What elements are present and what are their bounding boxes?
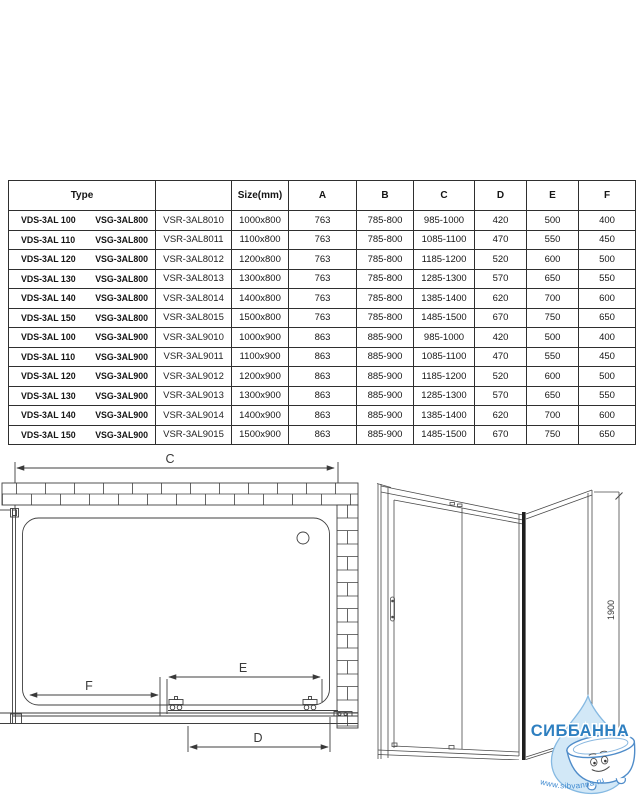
- type-cell: VDS-3AL 140 VSG-3AL900: [9, 406, 156, 426]
- dim-d-cell: 470: [475, 230, 527, 250]
- dim-e-cell: 550: [527, 347, 579, 367]
- dim-c-cell: 1385-1400: [414, 406, 475, 426]
- dim-a-cell: 763: [289, 269, 357, 289]
- model-vds: VDS-3AL 150: [21, 313, 76, 323]
- dim-d-cell: 520: [475, 367, 527, 387]
- col-header-d: D: [475, 181, 527, 211]
- dim-b-cell: 785-800: [357, 289, 414, 309]
- dim-d-cell: 670: [475, 308, 527, 328]
- type-cell: VDS-3AL 120 VSG-3AL800: [9, 250, 156, 270]
- type-cell: VDS-3AL 110 VSG-3AL900: [9, 347, 156, 367]
- dim-e-cell: 550: [527, 230, 579, 250]
- dim-b-cell: 885-900: [357, 367, 414, 387]
- size-cell: 1200x900: [232, 367, 289, 387]
- dim-d-cell: 420: [475, 211, 527, 231]
- model-vsg: VSG-3AL800: [95, 254, 148, 264]
- dim-d-cell: 520: [475, 250, 527, 270]
- dim-e-cell: 700: [527, 406, 579, 426]
- size-cell: 1000x800: [232, 211, 289, 231]
- dim-f-cell: 650: [579, 425, 636, 445]
- code-cell: VSR-3AL8010: [156, 211, 232, 231]
- dim-d-cell: 620: [475, 289, 527, 309]
- dim-e-cell: 500: [527, 328, 579, 348]
- dimension-f: [30, 677, 160, 716]
- dim-e-cell: 750: [527, 308, 579, 328]
- col-header-c: C: [414, 181, 475, 211]
- dim-a-cell: 763: [289, 250, 357, 270]
- model-vds: VDS-3AL 130: [21, 391, 76, 401]
- code-cell: VSR-3AL9012: [156, 367, 232, 387]
- table-row: VDS-3AL 100 VSG-3AL800 VSR-3AL8010 1000x…: [9, 211, 636, 231]
- dim-c-label: C: [165, 452, 174, 466]
- type-cell: VDS-3AL 140 VSG-3AL800: [9, 289, 156, 309]
- model-vsg: VSG-3AL800: [95, 293, 148, 303]
- shower-enclosure-spec-sheet: Type Size(mm) A B C D E F VDS-3AL 100 VS…: [0, 0, 638, 800]
- height-label: 1900: [606, 600, 616, 620]
- table-row: VDS-3AL 140 VSG-3AL900 VSR-3AL9014 1400x…: [9, 406, 636, 426]
- col-header-e: E: [527, 181, 579, 211]
- dim-f-cell: 600: [579, 289, 636, 309]
- col-header-a: A: [289, 181, 357, 211]
- model-vds: VDS-3AL 100: [21, 215, 76, 225]
- drain-icon: [297, 532, 309, 544]
- wall-right: [337, 505, 358, 728]
- model-vsg: VSG-3AL800: [95, 313, 148, 323]
- table-row: VDS-3AL 120 VSG-3AL800 VSR-3AL8012 1200x…: [9, 250, 636, 270]
- model-vsg: VSG-3AL900: [95, 332, 148, 342]
- table-row: VDS-3AL 150 VSG-3AL800 VSR-3AL8015 1500x…: [9, 308, 636, 328]
- dim-f-cell: 600: [579, 406, 636, 426]
- dim-a-cell: 763: [289, 308, 357, 328]
- dim-a-cell: 863: [289, 328, 357, 348]
- model-vds: VDS-3AL 140: [21, 410, 76, 420]
- code-cell: VSR-3AL9013: [156, 386, 232, 406]
- col-header-size: Size(mm): [232, 181, 289, 211]
- dim-c-cell: 1085-1100: [414, 230, 475, 250]
- type-cell: VDS-3AL 120 VSG-3AL900: [9, 367, 156, 387]
- code-cell: VSR-3AL8012: [156, 250, 232, 270]
- model-vds: VDS-3AL 130: [21, 274, 76, 284]
- dim-b-cell: 785-800: [357, 269, 414, 289]
- spec-table: Type Size(mm) A B C D E F VDS-3AL 100 VS…: [8, 180, 636, 445]
- dim-d-cell: 670: [475, 425, 527, 445]
- dim-f-cell: 400: [579, 211, 636, 231]
- dim-f-cell: 550: [579, 386, 636, 406]
- table-row: VDS-3AL 140 VSG-3AL800 VSR-3AL8014 1400x…: [9, 289, 636, 309]
- model-vds: VDS-3AL 140: [21, 293, 76, 303]
- col-header-f: F: [579, 181, 636, 211]
- model-vsg: VSG-3AL900: [95, 430, 148, 440]
- side-panel-profile: [0, 508, 19, 723]
- roller-left: [169, 697, 183, 710]
- dim-e-cell: 500: [527, 211, 579, 231]
- table-row: VDS-3AL 100 VSG-3AL900 VSR-3AL9010 1000x…: [9, 328, 636, 348]
- dim-b-cell: 785-800: [357, 250, 414, 270]
- size-cell: 1100x800: [232, 230, 289, 250]
- table-header-row: Type Size(mm) A B C D E F: [9, 181, 636, 211]
- model-vsg: VSG-3AL800: [95, 215, 148, 225]
- model-vds: VDS-3AL 100: [21, 332, 76, 342]
- code-cell: VSR-3AL9015: [156, 425, 232, 445]
- dim-c-cell: 1185-1200: [414, 250, 475, 270]
- dim-e-label: E: [239, 661, 247, 675]
- dim-f-label: F: [85, 679, 93, 693]
- model-vds: VDS-3AL 120: [21, 371, 76, 381]
- dim-e-cell: 750: [527, 425, 579, 445]
- bottom-rail: [0, 711, 358, 724]
- dim-f-cell: 500: [579, 367, 636, 387]
- dim-c-cell: 1285-1300: [414, 269, 475, 289]
- dim-b-cell: 785-800: [357, 308, 414, 328]
- code-cell: VSR-3AL8013: [156, 269, 232, 289]
- size-cell: 1300x900: [232, 386, 289, 406]
- table-row: VDS-3AL 130 VSG-3AL800 VSR-3AL8013 1300x…: [9, 269, 636, 289]
- code-cell: VSR-3AL9014: [156, 406, 232, 426]
- model-vds: VDS-3AL 120: [21, 254, 76, 264]
- table-row: VDS-3AL 110 VSG-3AL800 VSR-3AL8011 1100x…: [9, 230, 636, 250]
- model-vsg: VSG-3AL900: [95, 352, 148, 362]
- table-row: VDS-3AL 110 VSG-3AL900 VSR-3AL9011 1100x…: [9, 347, 636, 367]
- watermark-brand: СИББАННА: [531, 722, 630, 740]
- dim-f-cell: 400: [579, 328, 636, 348]
- model-vsg: VSG-3AL900: [95, 391, 148, 401]
- dim-c-cell: 985-1000: [414, 211, 475, 231]
- table-row: VDS-3AL 130 VSG-3AL900 VSR-3AL9013 1300x…: [9, 386, 636, 406]
- roller-right: [303, 697, 317, 710]
- dim-d-cell: 570: [475, 269, 527, 289]
- type-cell: VDS-3AL 130 VSG-3AL900: [9, 386, 156, 406]
- dim-a-cell: 763: [289, 211, 357, 231]
- type-cell: VDS-3AL 100 VSG-3AL900: [9, 328, 156, 348]
- dim-a-cell: 863: [289, 386, 357, 406]
- model-vds: VDS-3AL 150: [21, 430, 76, 440]
- dim-f-cell: 550: [579, 269, 636, 289]
- dim-c-cell: 1285-1300: [414, 386, 475, 406]
- dim-b-cell: 785-800: [357, 230, 414, 250]
- dim-d-cell: 620: [475, 406, 527, 426]
- dim-d-cell: 570: [475, 386, 527, 406]
- dim-a-cell: 863: [289, 406, 357, 426]
- type-cell: VDS-3AL 100 VSG-3AL800: [9, 211, 156, 231]
- bottom-rail-front: [378, 743, 519, 760]
- dim-e-cell: 600: [527, 367, 579, 387]
- dim-a-cell: 863: [289, 347, 357, 367]
- dim-e-cell: 650: [527, 269, 579, 289]
- type-cell: VDS-3AL 150 VSG-3AL800: [9, 308, 156, 328]
- dim-f-cell: 450: [579, 230, 636, 250]
- wall-top: [2, 483, 358, 505]
- size-cell: 1500x800: [232, 308, 289, 328]
- dim-b-cell: 885-900: [357, 386, 414, 406]
- dim-a-cell: 763: [289, 289, 357, 309]
- dim-c-cell: 1385-1400: [414, 289, 475, 309]
- col-header-type: Type: [9, 181, 156, 211]
- table-row: VDS-3AL 120 VSG-3AL900 VSR-3AL9012 1200x…: [9, 367, 636, 387]
- dim-c-cell: 1485-1500: [414, 308, 475, 328]
- dim-f-cell: 650: [579, 308, 636, 328]
- dimension-e: [167, 677, 322, 714]
- type-cell: VDS-3AL 150 VSG-3AL900: [9, 425, 156, 445]
- type-cell: VDS-3AL 130 VSG-3AL800: [9, 269, 156, 289]
- watermark: СИББАННА www.sibvanna.ru: [520, 686, 638, 800]
- code-cell: VSR-3AL9011: [156, 347, 232, 367]
- dim-e-cell: 600: [527, 250, 579, 270]
- dim-a-cell: 863: [289, 367, 357, 387]
- model-vds: VDS-3AL 110: [21, 235, 75, 245]
- top-view-drawing: C F E D: [0, 448, 370, 760]
- dim-d-cell: 470: [475, 347, 527, 367]
- dim-a-cell: 863: [289, 425, 357, 445]
- dim-f-cell: 500: [579, 250, 636, 270]
- dim-a-cell: 763: [289, 230, 357, 250]
- model-vsg: VSG-3AL800: [95, 235, 148, 245]
- dim-c-cell: 1085-1100: [414, 347, 475, 367]
- model-vsg: VSG-3AL900: [95, 410, 148, 420]
- dim-b-cell: 885-900: [357, 425, 414, 445]
- dim-c-cell: 1485-1500: [414, 425, 475, 445]
- size-cell: 1400x800: [232, 289, 289, 309]
- model-vds: VDS-3AL 110: [21, 352, 75, 362]
- dim-e-cell: 650: [527, 386, 579, 406]
- size-cell: 1000x900: [232, 328, 289, 348]
- size-cell: 1500x900: [232, 425, 289, 445]
- code-cell: VSR-3AL8014: [156, 289, 232, 309]
- dim-b-cell: 885-900: [357, 347, 414, 367]
- dim-f-cell: 450: [579, 347, 636, 367]
- type-cell: VDS-3AL 110 VSG-3AL800: [9, 230, 156, 250]
- dim-b-cell: 785-800: [357, 211, 414, 231]
- size-cell: 1300x800: [232, 269, 289, 289]
- model-vsg: VSG-3AL900: [95, 371, 148, 381]
- code-cell: VSR-3AL9010: [156, 328, 232, 348]
- top-rail: [381, 486, 523, 524]
- dim-c-cell: 985-1000: [414, 328, 475, 348]
- dim-c-cell: 1185-1200: [414, 367, 475, 387]
- table-row: VDS-3AL 150 VSG-3AL900 VSR-3AL9015 1500x…: [9, 425, 636, 445]
- dim-b-cell: 885-900: [357, 406, 414, 426]
- code-cell: VSR-3AL8015: [156, 308, 232, 328]
- dim-e-cell: 700: [527, 289, 579, 309]
- size-cell: 1200x800: [232, 250, 289, 270]
- model-vsg: VSG-3AL800: [95, 274, 148, 284]
- col-header-b: B: [357, 181, 414, 211]
- size-cell: 1400x900: [232, 406, 289, 426]
- dim-d-label: D: [253, 731, 262, 745]
- code-cell: VSR-3AL8011: [156, 230, 232, 250]
- dim-b-cell: 885-900: [357, 328, 414, 348]
- col-header-code: [156, 181, 232, 211]
- size-cell: 1100x900: [232, 347, 289, 367]
- dim-d-cell: 420: [475, 328, 527, 348]
